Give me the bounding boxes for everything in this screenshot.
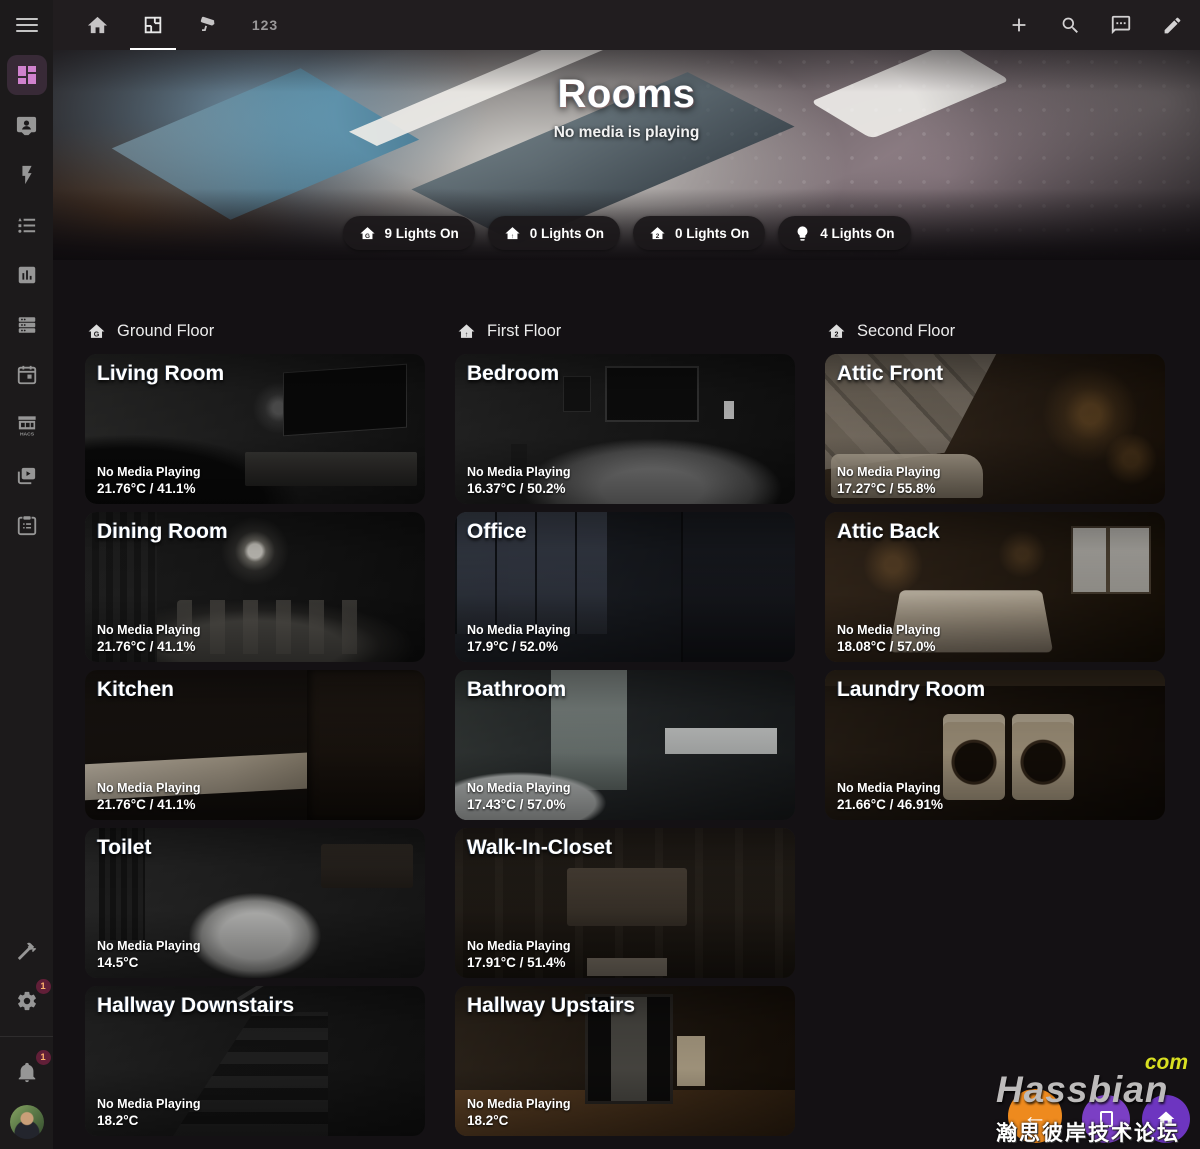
room-card-bedroom[interactable]: Bedroom No Media Playing16.37°C / 50.2% [455, 354, 795, 504]
room-media-status: No Media Playing [467, 465, 571, 479]
room-name: Office [467, 520, 527, 544]
room-climate: 21.76°C / 41.1% [97, 797, 201, 812]
hacs-store-icon: HACS [14, 412, 40, 438]
floor-heading-label: Second Floor [857, 322, 955, 341]
chip-label: 9 Lights On [385, 226, 459, 241]
room-climate: 21.76°C / 41.1% [97, 481, 201, 496]
cctv-icon [198, 14, 221, 37]
watermark-forum-name: 瀚思彼岸技术论坛 [996, 1117, 1180, 1147]
chip-ground-floor-lights[interactable]: G 9 Lights On [343, 216, 475, 250]
svg-text:↑: ↑ [511, 232, 514, 239]
room-climate: 18.08°C / 57.0% [837, 639, 941, 654]
room-name: Walk-In-Closet [467, 836, 612, 860]
sidebar-item-people[interactable] [7, 105, 47, 145]
chip-first-floor-lights[interactable]: ↑ 0 Lights On [488, 216, 620, 250]
chart-box-icon [16, 264, 38, 286]
tab-cameras[interactable] [181, 0, 237, 50]
sidebar-item-hacs[interactable]: HACS [7, 405, 47, 445]
chip-second-floor-lights[interactable]: 2 0 Lights On [633, 216, 765, 250]
watermark-brand: Hassbian [996, 1069, 1169, 1111]
room-name: Kitchen [97, 678, 174, 702]
chip-label: 4 Lights On [820, 226, 894, 241]
room-card-living-room[interactable]: Living Room No Media Playing21.76°C / 41… [85, 354, 425, 504]
floor-heading: 2 Second Floor [827, 322, 1165, 341]
sidebar-item-developer-tools[interactable] [7, 931, 47, 971]
sidebar-item-energy[interactable] [7, 155, 47, 195]
room-media-status: No Media Playing [837, 781, 943, 795]
room-climate: 17.91°C / 51.4% [467, 955, 571, 970]
floor-column-ground: G Ground Floor Living Room No Media Play… [85, 322, 425, 1149]
room-media-status: No Media Playing [467, 781, 571, 795]
topbar-actions [1007, 13, 1184, 37]
room-name: Toilet [97, 836, 151, 860]
sidebar-item-calendar[interactable] [7, 355, 47, 395]
room-media-status: No Media Playing [467, 623, 571, 637]
tab-floorplan[interactable] [125, 0, 181, 50]
room-media-status: No Media Playing [837, 465, 941, 479]
room-card-attic-back[interactable]: Attic Back No Media Playing18.08°C / 57.… [825, 512, 1165, 662]
search-button[interactable] [1058, 13, 1082, 37]
hero-header: Rooms No media is playing G 9 Lights On … [53, 50, 1200, 260]
search-icon [1060, 15, 1081, 36]
plus-icon [1008, 14, 1030, 36]
room-card-toilet[interactable]: Toilet No Media Playing14.5°C [85, 828, 425, 978]
server-icon [16, 314, 38, 336]
room-name: Bedroom [467, 362, 559, 386]
menu-button[interactable] [0, 0, 53, 50]
room-media-status: No Media Playing [467, 1097, 571, 1111]
sidebar-notifications[interactable]: 1 [7, 1052, 47, 1092]
floor-heading-label: Ground Floor [117, 322, 214, 341]
svg-text:2: 2 [656, 232, 660, 239]
room-climate: 18.2°C [97, 1113, 201, 1128]
room-name: Attic Back [837, 520, 940, 544]
room-climate: 17.27°C / 55.8% [837, 481, 941, 496]
tab-123[interactable]: 123 [237, 0, 293, 50]
sidebar-item-dashboard[interactable] [7, 55, 47, 95]
hamburger-icon [16, 14, 38, 36]
home-floor-2-icon: 2 [827, 322, 846, 341]
add-button[interactable] [1007, 13, 1031, 37]
room-name: Attic Front [837, 362, 943, 386]
room-name: Living Room [97, 362, 224, 386]
sidebar-item-settings[interactable]: 1 [7, 981, 47, 1021]
room-card-walk-in-closet[interactable]: Walk-In-Closet No Media Playing17.91°C /… [455, 828, 795, 978]
room-media-status: No Media Playing [97, 781, 201, 795]
edit-button[interactable] [1160, 13, 1184, 37]
room-climate: 14.5°C [97, 955, 201, 970]
home-floor-1-icon: ↑ [457, 322, 476, 341]
room-name: Dining Room [97, 520, 228, 544]
floorplan-icon [142, 14, 164, 36]
sidebar-divider [0, 1036, 53, 1037]
home-floor-2-icon: 2 [649, 225, 666, 242]
room-card-bathroom[interactable]: Bathroom No Media Playing17.43°C / 57.0% [455, 670, 795, 820]
room-climate: 18.2°C [467, 1113, 571, 1128]
floor-heading: G Ground Floor [87, 322, 425, 341]
notifications-badge: 1 [36, 1050, 51, 1065]
lights-chips: G 9 Lights On ↑ 0 Lights On 2 0 Lights O… [53, 216, 1200, 250]
home-icon [86, 14, 109, 37]
sidebar-item-history[interactable] [7, 255, 47, 295]
sidebar-item-media[interactable] [7, 455, 47, 495]
list-bulleted-icon [15, 214, 38, 237]
room-media-status: No Media Playing [97, 1097, 201, 1111]
badge-account-icon [15, 114, 38, 137]
room-climate: 21.76°C / 41.1% [97, 639, 201, 654]
floor-heading: ↑ First Floor [457, 322, 795, 341]
room-climate: 17.43°C / 57.0% [467, 797, 571, 812]
assist-button[interactable] [1109, 13, 1133, 37]
floor-column-first: ↑ First Floor Bedroom No Media Playing16… [455, 322, 795, 1149]
room-card-kitchen[interactable]: Kitchen No Media Playing21.76°C / 41.1% [85, 670, 425, 820]
room-card-office[interactable]: Office No Media Playing17.9°C / 52.0% [455, 512, 795, 662]
room-card-attic-front[interactable]: Attic Front No Media Playing17.27°C / 55… [825, 354, 1165, 504]
hammer-icon [16, 940, 38, 962]
room-name: Hallway Upstairs [467, 994, 635, 1018]
svg-text:G: G [365, 232, 370, 239]
chip-total-lights[interactable]: 4 Lights On [778, 216, 910, 250]
room-card-hallway-downstairs[interactable]: Hallway Downstairs No Media Playing18.2°… [85, 986, 425, 1136]
room-name: Hallway Downstairs [97, 994, 294, 1018]
hassbian-watermark: ← Hassbian com 瀚思彼岸技术论坛 [996, 1059, 1192, 1145]
clipboard-list-icon [16, 514, 38, 536]
home-floor-1-icon: ↑ [504, 225, 521, 242]
svg-text:HACS: HACS [19, 431, 34, 437]
lightning-bolt-icon [16, 164, 38, 186]
chip-label: 0 Lights On [530, 226, 604, 241]
media-status-text: No media is playing [53, 124, 1200, 142]
view-tabs: 123 [69, 0, 293, 50]
page-title: Rooms [53, 72, 1200, 117]
room-card-dining-room[interactable]: Dining Room No Media Playing21.76°C / 41… [85, 512, 425, 662]
room-climate: 17.9°C / 52.0% [467, 639, 571, 654]
sidebar-item-todo[interactable] [7, 505, 47, 545]
room-card-hallway-upstairs[interactable]: Hallway Upstairs No Media Playing18.2°C [455, 986, 795, 1136]
rooms-grid: G Ground Floor Living Room No Media Play… [53, 260, 1200, 1149]
chat-dots-icon [1110, 14, 1132, 36]
room-media-status: No Media Playing [837, 623, 941, 637]
room-media-status: No Media Playing [97, 623, 201, 637]
svg-text:2: 2 [835, 330, 839, 338]
home-floor-g-icon: G [359, 225, 376, 242]
tab-123-label: 123 [252, 17, 278, 33]
gear-icon [16, 990, 38, 1012]
calendar-icon [16, 364, 38, 386]
home-floor-g-icon: G [87, 322, 106, 341]
floor-heading-label: First Floor [487, 322, 561, 341]
room-climate: 21.66°C / 46.91% [837, 797, 943, 812]
pencil-icon [1162, 15, 1183, 36]
top-bar: 123 [53, 0, 1200, 50]
room-card-laundry-room[interactable]: Laundry Room No Media Playing21.66°C / 4… [825, 670, 1165, 820]
room-media-status: No Media Playing [467, 939, 571, 953]
room-media-status: No Media Playing [97, 939, 201, 953]
floor-column-second: 2 Second Floor Attic Front No Media Play… [825, 322, 1165, 1149]
bell-icon [16, 1061, 38, 1083]
media-play-icon [15, 464, 38, 487]
view-dashboard-icon [15, 63, 39, 87]
room-name: Laundry Room [837, 678, 985, 702]
sidebar: HACS 1 1 [0, 0, 53, 1149]
room-climate: 16.37°C / 50.2% [467, 481, 571, 496]
svg-text:G: G [94, 330, 100, 338]
room-media-status: No Media Playing [97, 465, 201, 479]
lightbulb-icon [794, 225, 811, 242]
watermark-tld: com [1145, 1051, 1188, 1075]
room-name: Bathroom [467, 678, 566, 702]
tab-home[interactable] [69, 0, 125, 50]
sidebar-item-logbook[interactable] [7, 205, 47, 245]
chip-label: 0 Lights On [675, 226, 749, 241]
user-avatar[interactable] [10, 1105, 44, 1139]
sidebar-item-server[interactable] [7, 305, 47, 345]
settings-badge: 1 [36, 979, 51, 994]
svg-text:↑: ↑ [465, 330, 469, 338]
